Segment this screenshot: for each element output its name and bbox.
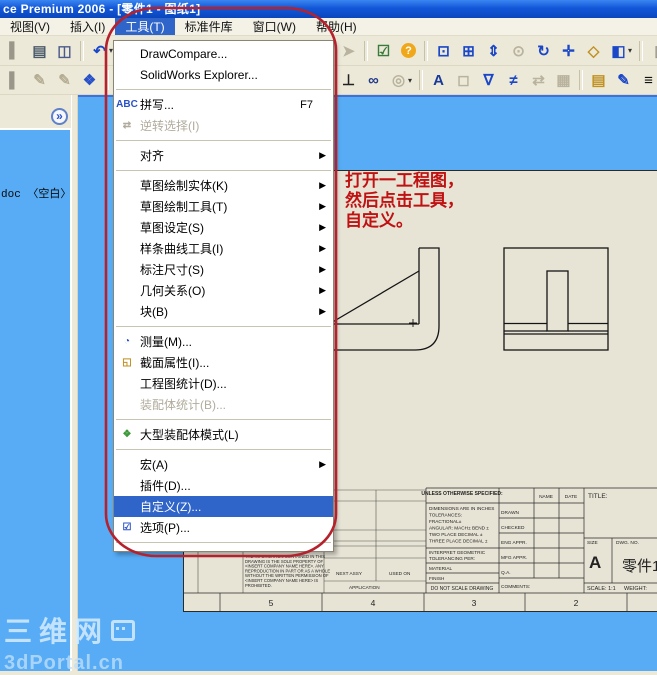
svg-text:4: 4 <box>371 598 376 608</box>
menu-item-drawcompare[interactable]: DrawCompare... <box>114 43 333 64</box>
surface-finish-icon[interactable]: ∇ <box>477 69 500 92</box>
print-icon[interactable]: ▤ <box>28 39 51 62</box>
submenu-arrow-icon: ▶ <box>319 459 329 470</box>
toolbar-separator <box>424 41 428 61</box>
svg-text:DRAWN: DRAWN <box>501 510 519 516</box>
svg-text:FRACTIONAL±: FRACTIONAL± <box>429 519 462 524</box>
svg-text:ENG APPR.: ENG APPR. <box>501 540 527 546</box>
auto-relations-icon-dropdown-caret[interactable]: ▾ <box>408 76 416 85</box>
modify-sketch-icon[interactable]: ❖ <box>78 69 101 92</box>
svg-text:NEXT ASSY: NEXT ASSY <box>336 571 363 576</box>
menu-item-relations[interactable]: 几何关系(O)▶ <box>114 280 333 301</box>
task-pane: » doc 〈空白〉 <box>0 95 71 671</box>
layer-properties-icon: ▤ <box>591 71 605 89</box>
svg-text:FINISH: FINISH <box>429 576 444 581</box>
3d-sketch-icon: ✎ <box>58 71 71 89</box>
menu-item-label: 草图绘制工具(T) <box>140 198 227 215</box>
toolbar-separator <box>105 70 109 90</box>
print-preview-icon: ◫ <box>57 42 71 60</box>
menu-item-label: 标注尺寸(S) <box>140 261 204 278</box>
hatch-icon[interactable]: ▦ <box>552 69 575 92</box>
menu-item-label: 逆转选择(I) <box>140 117 199 134</box>
rotate-view-icon[interactable]: ↻ <box>532 39 555 62</box>
balloon-icon[interactable]: ◻ <box>452 69 475 92</box>
menu-item-spline-tools[interactable]: 样条曲线工具(I)▶ <box>114 238 333 259</box>
pan-icon: ✛ <box>562 42 575 60</box>
svg-text:5: 5 <box>269 598 274 608</box>
menu-item-label: 装配体统计(B)... <box>140 396 226 413</box>
dimension-arrows-icon[interactable]: ⇄ <box>527 69 550 92</box>
note-icon[interactable]: A <box>427 69 450 92</box>
toolbar-separator <box>80 41 84 61</box>
display-relations-icon: ∞ <box>368 72 379 89</box>
undo-icon[interactable]: ↶ <box>88 39 111 62</box>
menubar-item-insert[interactable]: 插入(I) <box>60 18 115 35</box>
menu-item-label: 自定义菜单(M) <box>140 549 218 552</box>
menu-item-label: 几何关系(O) <box>140 282 205 299</box>
display-relations-icon[interactable]: ∞ <box>362 69 385 92</box>
menu-separator <box>116 326 331 327</box>
menu-item-label: 草图设定(S) <box>140 219 204 236</box>
zoom-area-icon[interactable]: ⊞ <box>457 39 480 62</box>
submenu-arrow-icon: ▶ <box>319 201 329 212</box>
zoom-inout-icon: ⇕ <box>487 42 500 60</box>
menu-item-label: 截面属性(I)... <box>140 354 209 371</box>
partial-icon: ▌ <box>9 42 20 59</box>
drawing-view-front[interactable] <box>504 248 608 350</box>
filter-toggle-icon: ☑ <box>377 42 390 60</box>
svg-text:零件1: 零件1 <box>622 558 657 575</box>
filter-toggle-icon[interactable]: ☑ <box>372 39 395 62</box>
toolbar-group-standard: ▌▤◫↶▾ <box>2 36 117 65</box>
measure-icon: ◔ <box>114 331 140 352</box>
submenu-arrow-icon: ▶ <box>319 306 329 317</box>
balloon-icon: ◻ <box>457 71 469 89</box>
window-title: ce Premium 2006 - [零件1 - 图纸1] <box>3 2 200 16</box>
selection-filter-icon[interactable]: ➤ <box>337 39 360 62</box>
menubar-item-help[interactable]: 帮助(H) <box>306 18 367 35</box>
submenu-arrow-icon: ▶ <box>319 222 329 233</box>
svg-text:CHECKED: CHECKED <box>501 525 525 531</box>
svg-text:SIZE: SIZE <box>587 540 598 546</box>
svg-text:MATERIAL: MATERIAL <box>429 566 452 571</box>
menu-separator <box>116 89 331 90</box>
svg-text:INTERPRET GEOMETRIC: INTERPRET GEOMETRIC <box>429 550 486 555</box>
annotation-text: 打开一工程图， 然后点击工具， 自定义。 <box>345 171 464 231</box>
print-icon: ▤ <box>32 42 46 60</box>
3d-drawing-view-icon[interactable]: ◇ <box>582 39 605 62</box>
pan-icon[interactable]: ✛ <box>557 39 580 62</box>
partial-icon[interactable]: ▌ <box>3 39 26 62</box>
options-icon: ☑ <box>114 517 140 538</box>
toolbar-separator <box>419 70 423 90</box>
weld-symbol-icon: ≠ <box>509 72 517 89</box>
rotate-view-icon: ↻ <box>537 42 550 60</box>
menu-item-label: DrawCompare... <box>140 47 227 61</box>
svg-text:COMMENTS:: COMMENTS: <box>501 584 530 590</box>
svg-text:PROHIBITED.: PROHIBITED. <box>245 583 272 588</box>
menubar-item-view[interactable]: 视图(V) <box>0 18 60 35</box>
sketch-icon: ✎ <box>33 71 46 89</box>
submenu-arrow-icon: ▶ <box>319 243 329 254</box>
menu-item-sketch-entities[interactable]: 草图绘制实体(K)▶ <box>114 175 333 196</box>
print-preview-icon[interactable]: ◫ <box>53 39 76 62</box>
toolbar-separator <box>364 41 368 61</box>
menu-item-label: 大型装配体模式(L) <box>140 426 239 443</box>
zoom-fit-icon[interactable]: ⊡ <box>432 39 455 62</box>
collapse-pane-button[interactable]: » <box>51 108 68 125</box>
menu-item-label: 插件(D)... <box>140 477 191 494</box>
window-title-bar[interactable]: ce Premium 2006 - [零件1 - 图纸1] <box>0 0 657 18</box>
svg-text:TWO PLACE DECIMAL ±: TWO PLACE DECIMAL ± <box>429 532 483 537</box>
3d-drawing-view-icon: ◇ <box>588 42 600 60</box>
modify-sketch-icon: ❖ <box>83 71 96 89</box>
menu-item-large-assembly-mode[interactable]: ❖大型装配体模式(L) <box>114 424 333 445</box>
svg-text:MFG APPR.: MFG APPR. <box>501 555 527 561</box>
menu-item-assembly-statistics[interactable]: 装配体统计(B)... <box>114 394 333 415</box>
view-orientation-icon: ◧ <box>611 42 625 60</box>
line-format-icon: ≡ <box>644 72 653 89</box>
partial-icon-2: ▌ <box>9 72 20 89</box>
svg-text:DATE: DATE <box>565 494 577 500</box>
weld-symbol-icon[interactable]: ≠ <box>502 69 525 92</box>
svg-text:DO NOT SCALE DRAWING: DO NOT SCALE DRAWING <box>431 586 494 592</box>
menu-item-label: 对齐 <box>140 147 164 164</box>
blank-doc-label: doc 〈空白〉 <box>1 185 71 201</box>
menu-item-align[interactable]: 对齐▶ <box>114 145 333 166</box>
layer-color-icon[interactable]: ✎ <box>612 69 635 92</box>
menu-separator <box>116 449 331 450</box>
submenu-arrow-icon: ▶ <box>319 264 329 275</box>
surface-finish-icon: ∇ <box>483 71 493 89</box>
menu-bar: 视图(V)插入(I)工具(T)标准件库窗口(W)帮助(H) <box>0 18 657 36</box>
svg-text:Q.A.: Q.A. <box>501 570 511 576</box>
tools-dropdown-menu: DrawCompare...SolidWorks Explorer...ABC拼… <box>113 40 334 552</box>
menu-item-label: 样条曲线工具(I) <box>140 240 223 257</box>
svg-text:SCALE: 1:1: SCALE: 1:1 <box>587 586 616 592</box>
submenu-arrow-icon: ▶ <box>319 150 329 161</box>
task-pane-header: » <box>0 95 71 129</box>
spell-check-icon: ABC <box>114 94 140 115</box>
menu-item-label: 选项(P)... <box>140 519 190 536</box>
auto-relations-icon: ◎ <box>392 71 405 89</box>
menu-item-shortcut: F7 <box>300 99 329 111</box>
help-icon: ? <box>401 43 416 58</box>
svg-text:DIMENSIONS ARE IN INCHES: DIMENSIONS ARE IN INCHES <box>429 506 494 511</box>
menu-item-measure[interactable]: ◔测量(M)... <box>114 331 333 352</box>
toolbar-separator <box>639 41 643 61</box>
line-format-icon[interactable]: ≡ <box>637 69 657 92</box>
sketch-icon[interactable]: ✎ <box>28 69 51 92</box>
menu-item-label: SolidWorks Explorer... <box>140 68 258 82</box>
svg-text:THREE PLACE DECIMAL ±: THREE PLACE DECIMAL ± <box>429 539 488 544</box>
svg-text:ANGULAR: MACH± BEND ±: ANGULAR: MACH± BEND ± <box>429 526 489 531</box>
svg-text:UNLESS OTHERWISE SPECIFIED:: UNLESS OTHERWISE SPECIFIED: <box>421 491 503 497</box>
menu-item-add-ins[interactable]: 插件(D)... <box>114 475 333 496</box>
zoom-area-icon: ⊞ <box>462 42 475 60</box>
zoom-inout-icon[interactable]: ⇕ <box>482 39 505 62</box>
menu-item-spelling[interactable]: ABC拼写...F7 <box>114 94 333 115</box>
partial-right-icon[interactable]: ▯ <box>647 39 657 62</box>
menu-item-label: 自定义(Z)... <box>140 498 201 515</box>
menu-item-label: 测量(M)... <box>140 333 192 350</box>
menu-item-invert-selection[interactable]: ⇄逆转选择(I) <box>114 115 333 136</box>
pane-splitter[interactable] <box>71 95 78 671</box>
menu-item-label: 块(B) <box>140 303 168 320</box>
selection-filter-icon: ➤ <box>342 42 355 60</box>
view-orientation-icon-dropdown-caret[interactable]: ▾ <box>628 46 636 55</box>
svg-text:2: 2 <box>574 598 579 608</box>
help-icon[interactable]: ? <box>397 39 420 62</box>
svg-text:WEIGHT:: WEIGHT: <box>624 586 647 592</box>
menubar-item-window[interactable]: 窗口(W) <box>243 18 306 35</box>
large-assembly-mode-icon: ❖ <box>114 424 140 445</box>
menu-separator <box>116 140 331 141</box>
menu-item-dimensions[interactable]: 标注尺寸(S)▶ <box>114 259 333 280</box>
toolbar-separator <box>579 70 583 90</box>
menubar-item-library[interactable]: 标准件库 <box>175 18 243 35</box>
zoom-selection-icon[interactable]: ⊙ <box>507 39 530 62</box>
menu-item-section-properties[interactable]: ◱截面属性(I)... <box>114 352 333 373</box>
menu-item-customize-menu[interactable]: 自定义菜单(M) <box>114 547 333 552</box>
undo-icon: ↶ <box>93 42 106 60</box>
menu-item-drawing-statistics[interactable]: 工程图统计(D)... <box>114 373 333 394</box>
solidworks-window: { "title_bar": { "title": "ce Premium 20… <box>0 0 657 671</box>
menu-separator <box>116 542 331 543</box>
task-pane-body[interactable]: doc 〈空白〉 <box>0 129 71 671</box>
svg-text:USED ON: USED ON <box>389 571 410 576</box>
menu-item-customize[interactable]: 自定义(Z)... <box>114 496 333 517</box>
menu-item-label: 工程图统计(D)... <box>140 375 227 392</box>
layer-color-icon: ✎ <box>617 71 630 89</box>
toolbar-group-annotation: ⊥∞◎▾A◻∇≠⇄▦▤✎≡ <box>336 66 657 94</box>
dimension-arrows-icon: ⇄ <box>532 71 545 89</box>
menu-item-macro[interactable]: 宏(A)▶ <box>114 454 333 475</box>
zoom-fit-icon: ⊡ <box>437 42 450 60</box>
submenu-arrow-icon: ▶ <box>319 285 329 296</box>
menu-item-label: 宏(A) <box>140 456 168 473</box>
menu-item-solidworks-explorer[interactable]: SolidWorks Explorer... <box>114 64 333 85</box>
menu-item-sketch-tools[interactable]: 草图绘制工具(T)▶ <box>114 196 333 217</box>
svg-text:TOLERANCES:: TOLERANCES: <box>429 513 462 518</box>
svg-text:3: 3 <box>472 598 477 608</box>
toolbar-group-view: ➤☑?⊡⊞⇕⊙↻✛◇◧▾▯ <box>336 36 657 65</box>
svg-text:NAME: NAME <box>539 494 553 500</box>
add-relation-icon[interactable]: ⊥ <box>337 69 360 92</box>
submenu-arrow-icon: ▶ <box>319 180 329 191</box>
layer-properties-icon[interactable]: ▤ <box>587 69 610 92</box>
invert-selection-icon: ⇄ <box>114 115 140 136</box>
svg-text:TITLE:: TITLE: <box>588 493 608 500</box>
section-properties-icon: ◱ <box>114 352 140 373</box>
menu-item-label: 草图绘制实体(K) <box>140 177 228 194</box>
menu-item-options[interactable]: ☑选项(P)... <box>114 517 333 538</box>
menu-separator <box>116 170 331 171</box>
3d-sketch-icon[interactable]: ✎ <box>53 69 76 92</box>
menu-separator <box>116 419 331 420</box>
add-relation-icon: ⊥ <box>342 71 355 89</box>
svg-text:DWG. NO.: DWG. NO. <box>616 540 639 546</box>
svg-text:A: A <box>589 553 601 572</box>
drawing-view-side[interactable] <box>330 248 439 350</box>
hatch-icon: ▦ <box>556 71 570 89</box>
zoom-selection-icon: ⊙ <box>512 42 525 60</box>
view-orientation-icon[interactable]: ◧ <box>607 39 630 62</box>
auto-relations-icon[interactable]: ◎ <box>387 69 410 92</box>
note-icon: A <box>433 72 444 89</box>
menu-item-blocks[interactable]: 块(B)▶ <box>114 301 333 322</box>
menu-item-sketch-settings[interactable]: 草图设定(S)▶ <box>114 217 333 238</box>
menu-item-label: 拼写... <box>140 96 174 113</box>
svg-text:TOLERANCING PER:: TOLERANCING PER: <box>429 556 475 561</box>
svg-text:APPLICATION: APPLICATION <box>349 585 380 590</box>
partial-icon-2[interactable]: ▌ <box>3 69 26 92</box>
menubar-item-tools[interactable]: 工具(T) <box>115 18 174 35</box>
